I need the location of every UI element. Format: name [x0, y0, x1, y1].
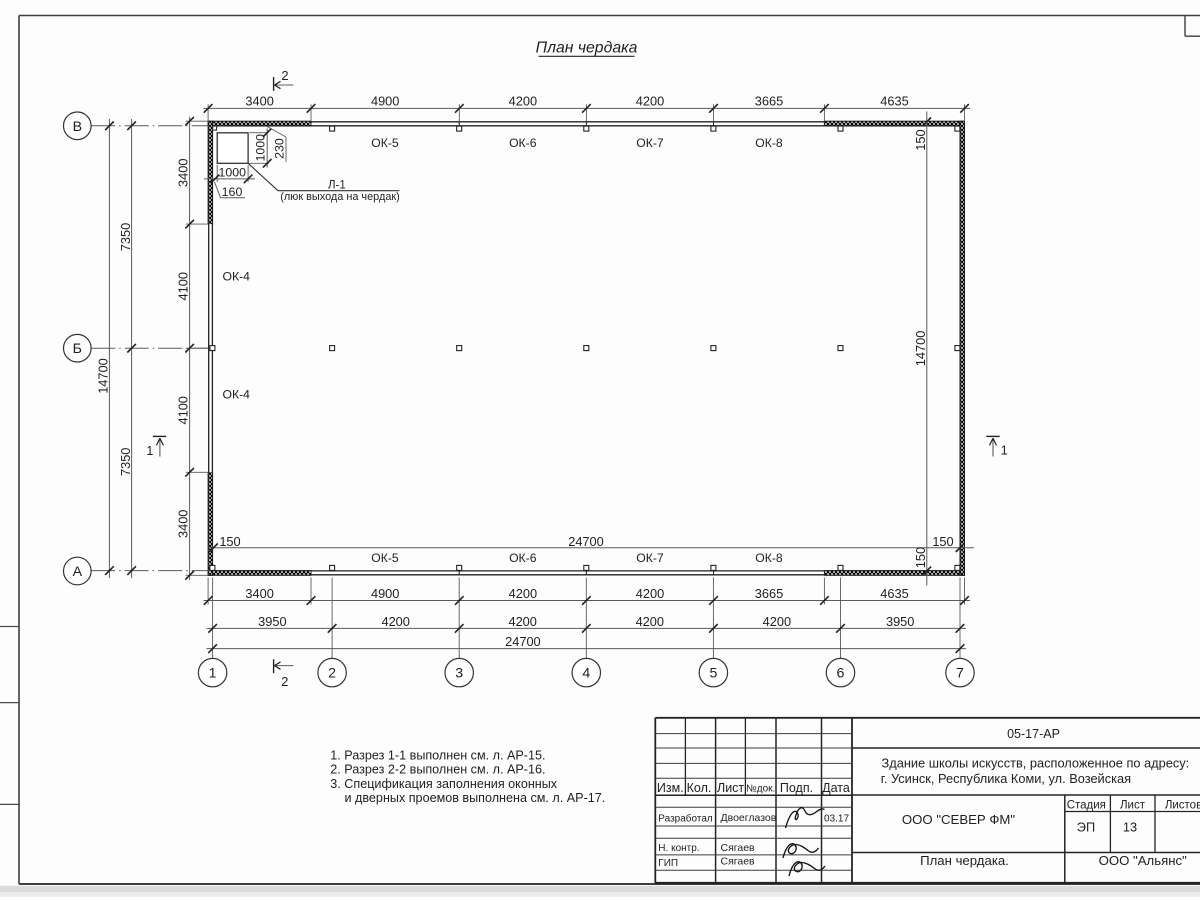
- svg-text:5: 5: [709, 666, 717, 682]
- svg-text:4200: 4200: [636, 614, 664, 629]
- svg-text:4635: 4635: [880, 586, 908, 601]
- svg-text:А: А: [73, 564, 83, 580]
- svg-text:4100: 4100: [175, 396, 190, 424]
- svg-text:4200: 4200: [508, 614, 536, 629]
- svg-text:Изм.: Изм.: [657, 781, 684, 795]
- svg-text:14700: 14700: [96, 358, 111, 394]
- svg-text:4200: 4200: [509, 94, 537, 109]
- svg-text:3. Спецификация заполнения око: 3. Спецификация заполнения оконных: [330, 777, 557, 791]
- svg-text:7350: 7350: [118, 223, 133, 251]
- svg-text:ОК-4: ОК-4: [222, 270, 250, 284]
- svg-text:4200: 4200: [509, 586, 537, 601]
- svg-text:1. Разрез 1-1 выполнен см. л.: 1. Разрез 1-1 выполнен см. л. АР-15.: [330, 748, 545, 762]
- svg-text:ОК-7: ОК-7: [636, 136, 664, 150]
- svg-text:1: 1: [209, 666, 217, 682]
- svg-text:6: 6: [837, 666, 845, 682]
- svg-text:Подп.: Подп.: [780, 781, 813, 795]
- svg-text:4100: 4100: [175, 272, 190, 300]
- svg-text:ООО "Альянс": ООО "Альянс": [1099, 853, 1187, 868]
- svg-text:160: 160: [222, 185, 243, 199]
- svg-text:1: 1: [1001, 443, 1008, 457]
- svg-text:Здание школы искусств, располо: Здание школы искусств, расположенное по …: [882, 756, 1190, 771]
- svg-text:4900: 4900: [371, 94, 399, 109]
- svg-text:2: 2: [281, 68, 288, 83]
- svg-text:2: 2: [328, 666, 336, 682]
- svg-text:4635: 4635: [880, 94, 908, 109]
- svg-text:4900: 4900: [371, 586, 399, 601]
- svg-text:(люк выхода на чердак): (люк выхода на чердак): [280, 191, 400, 203]
- svg-text:3400: 3400: [175, 158, 190, 186]
- svg-text:05-17-АР: 05-17-АР: [1007, 727, 1060, 741]
- svg-text:3950: 3950: [886, 614, 914, 629]
- svg-text:3665: 3665: [755, 586, 783, 601]
- svg-text:ГИП: ГИП: [658, 858, 678, 869]
- svg-text:Разработал: Разработал: [658, 812, 713, 824]
- svg-text:1000: 1000: [219, 166, 247, 180]
- svg-text:3400: 3400: [245, 586, 273, 601]
- svg-text:Дата: Дата: [822, 781, 850, 795]
- svg-text:14700: 14700: [913, 331, 928, 367]
- svg-text:4: 4: [582, 666, 590, 682]
- svg-text:Б: Б: [73, 341, 82, 357]
- svg-text:ОК-5: ОК-5: [371, 136, 399, 150]
- svg-text:ОК-4: ОК-4: [222, 388, 250, 402]
- svg-text:150: 150: [913, 547, 928, 568]
- svg-text:Кол.: Кол.: [687, 781, 712, 795]
- svg-text:7350: 7350: [118, 448, 133, 476]
- svg-text:3: 3: [455, 666, 463, 682]
- svg-text:24700: 24700: [505, 634, 541, 649]
- svg-text:7: 7: [956, 666, 964, 682]
- svg-text:ОК-8: ОК-8: [755, 551, 783, 565]
- svg-text:3400: 3400: [175, 510, 190, 538]
- svg-text:ОК-7: ОК-7: [636, 551, 664, 565]
- svg-text:4200: 4200: [636, 94, 664, 109]
- svg-text:ЭП: ЭП: [1077, 820, 1095, 835]
- svg-text:1: 1: [146, 444, 153, 458]
- svg-text:План чердака.: План чердака.: [920, 853, 1009, 868]
- svg-text:Лист: Лист: [717, 781, 744, 795]
- svg-text:150: 150: [932, 534, 953, 549]
- svg-text:План чердака: План чердака: [536, 40, 638, 57]
- svg-text:3950: 3950: [258, 614, 286, 629]
- svg-text:2: 2: [281, 674, 288, 689]
- svg-text:Листов: Листов: [1165, 800, 1200, 812]
- svg-text:Стадия: Стадия: [1067, 800, 1106, 812]
- svg-text:ООО "СЕВЕР ФМ": ООО "СЕВЕР ФМ": [902, 812, 1016, 827]
- svg-text:Лист: Лист: [1120, 800, 1146, 812]
- svg-text:и дверных проемов выполнена см: и дверных проемов выполнена см. л. АР-17…: [345, 791, 606, 805]
- svg-text:1000: 1000: [253, 134, 267, 162]
- svg-text:Н. контр.: Н. контр.: [658, 843, 699, 854]
- svg-text:03.17: 03.17: [824, 814, 849, 825]
- svg-text:230: 230: [272, 138, 286, 159]
- svg-text:ОК-6: ОК-6: [509, 136, 537, 150]
- svg-text:4200: 4200: [381, 614, 409, 629]
- svg-text:Сягаев: Сягаев: [721, 855, 756, 867]
- svg-text:150: 150: [219, 534, 240, 549]
- svg-text:13: 13: [1123, 820, 1137, 835]
- svg-text:24700: 24700: [568, 534, 604, 549]
- svg-text:Сягаев: Сягаев: [721, 842, 756, 854]
- svg-text:№док.: №док.: [746, 784, 775, 795]
- svg-text:Л-1: Л-1: [328, 180, 346, 192]
- svg-text:ОК-6: ОК-6: [509, 551, 537, 565]
- svg-text:3665: 3665: [755, 94, 783, 109]
- svg-text:ОК-5: ОК-5: [371, 551, 399, 565]
- svg-text:В: В: [73, 119, 82, 135]
- svg-text:3400: 3400: [245, 94, 273, 109]
- svg-text:150: 150: [913, 129, 928, 150]
- svg-text:4200: 4200: [636, 586, 664, 601]
- svg-text:ОК-8: ОК-8: [755, 136, 783, 150]
- svg-text:Двоеглазов: Двоеглазов: [721, 812, 777, 824]
- svg-text:2. Разрез 2-2 выполнен см. л.: 2. Разрез 2-2 выполнен см. л. АР-16.: [330, 763, 545, 777]
- svg-text:г. Усинск, Республика Коми, ул: г. Усинск, Республика Коми, ул. Возейска…: [881, 771, 1131, 786]
- svg-text:4200: 4200: [763, 614, 791, 629]
